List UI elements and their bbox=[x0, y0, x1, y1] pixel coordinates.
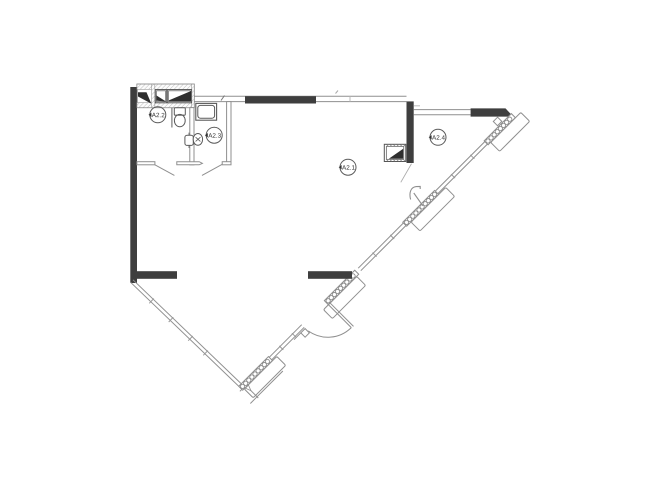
svg-text:A2.3: A2.3 bbox=[208, 133, 221, 140]
svg-text:A2.2: A2.2 bbox=[152, 112, 165, 119]
svg-text:A2.1: A2.1 bbox=[342, 165, 355, 172]
svg-text:A2.4: A2.4 bbox=[432, 135, 445, 142]
